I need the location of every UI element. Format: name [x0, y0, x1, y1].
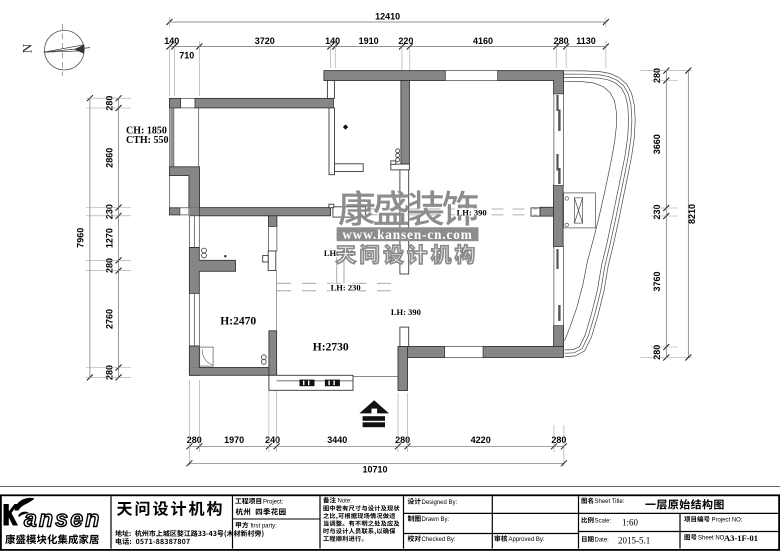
svg-text:1270: 1270	[105, 228, 115, 248]
svg-text:1910: 1910	[359, 36, 379, 46]
svg-text:10710: 10710	[362, 465, 387, 475]
svg-text:3720: 3720	[255, 36, 275, 46]
svg-text:1970: 1970	[224, 435, 244, 445]
svg-text:280: 280	[105, 96, 115, 111]
svg-text:Designed By:: Designed By:	[422, 500, 458, 506]
svg-text:2760: 2760	[105, 309, 115, 329]
svg-text:1:60: 1:60	[622, 518, 639, 528]
svg-text:2860: 2860	[105, 148, 115, 168]
svg-text:H:2730: H:2730	[313, 342, 349, 354]
svg-text:Sheet Title:: Sheet Title:	[595, 499, 625, 505]
svg-text:3440: 3440	[327, 435, 347, 445]
svg-text:3660: 3660	[652, 134, 662, 154]
svg-text:230: 230	[652, 204, 662, 219]
svg-text:Drawn By:: Drawn By:	[422, 517, 450, 523]
svg-text:3760: 3760	[652, 271, 662, 291]
svg-text:140: 140	[325, 36, 340, 46]
svg-text:12410: 12410	[375, 12, 400, 22]
svg-text:220: 220	[398, 36, 413, 46]
svg-text:240: 240	[265, 435, 280, 445]
svg-text:first party:: first party:	[251, 524, 278, 530]
svg-text:140: 140	[164, 36, 179, 46]
svg-text:www.kansen-cn.com: www.kansen-cn.com	[342, 227, 472, 242]
svg-text:A3-1F-01: A3-1F-01	[724, 533, 758, 543]
svg-text:H:2470: H:2470	[220, 316, 256, 328]
svg-text:Scale:: Scale:	[595, 519, 612, 525]
svg-text:710: 710	[179, 51, 194, 61]
svg-text:7960: 7960	[76, 228, 86, 248]
svg-text:N: N	[20, 43, 35, 53]
svg-text:ansen: ansen	[24, 506, 101, 532]
svg-text:LH: 390: LH: 390	[457, 207, 487, 217]
svg-text:2015-5.1: 2015-5.1	[618, 536, 650, 546]
svg-text:4160: 4160	[473, 36, 493, 46]
svg-text:230: 230	[105, 204, 115, 219]
svg-text:Date:: Date:	[595, 538, 610, 544]
svg-text:Sheet NO:: Sheet NO:	[698, 536, 726, 542]
svg-text:LH: 390: LH: 390	[391, 307, 421, 317]
svg-text:280: 280	[395, 435, 410, 445]
svg-text:Approved By:: Approved By:	[509, 537, 545, 543]
svg-text:Checked By:: Checked By:	[422, 537, 456, 543]
svg-text:4220: 4220	[471, 435, 491, 445]
svg-text:CTH: 550: CTH: 550	[126, 135, 169, 146]
svg-text:Project:: Project:	[263, 500, 284, 506]
svg-text:1130: 1130	[576, 36, 596, 46]
svg-text:Project NO:: Project NO:	[712, 518, 743, 524]
svg-text:8210: 8210	[687, 204, 697, 224]
svg-text:Note:: Note:	[338, 499, 353, 505]
svg-text:LH: 230: LH: 230	[331, 282, 361, 292]
